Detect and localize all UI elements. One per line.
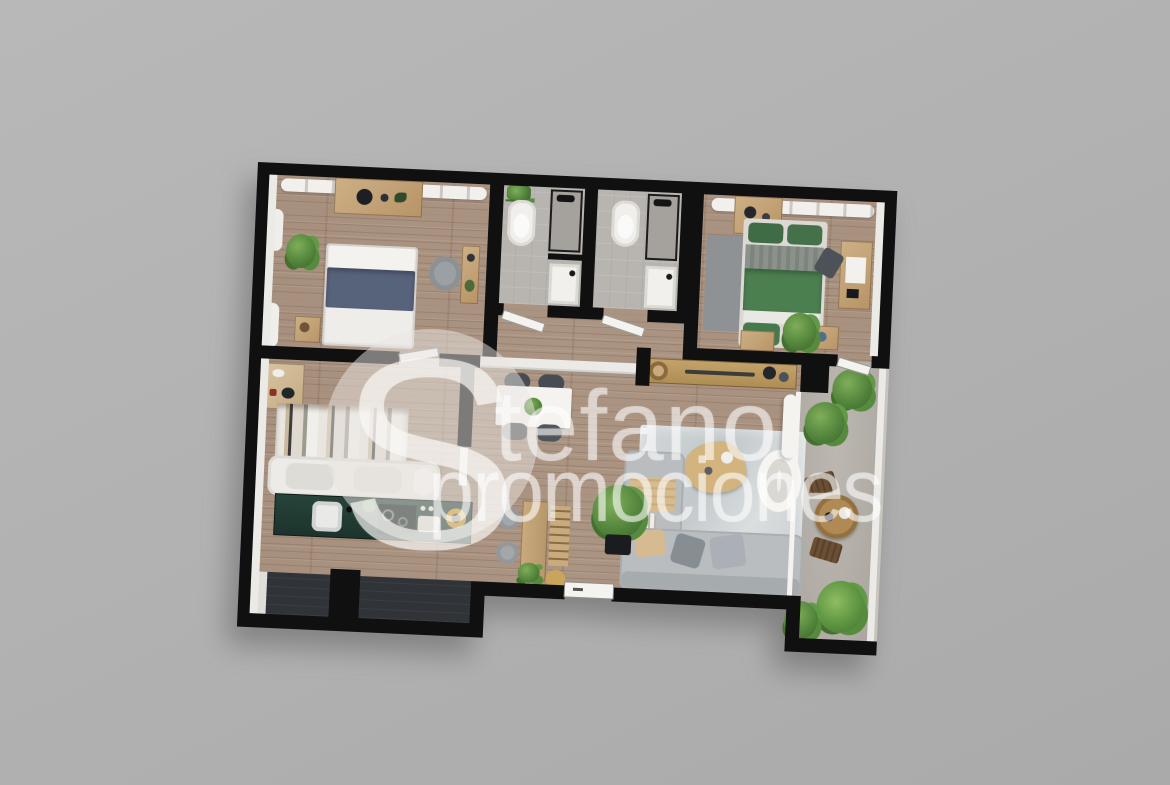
toilet-bowl — [617, 214, 634, 239]
desk — [838, 241, 873, 310]
tap — [569, 270, 575, 276]
blue-bowl — [779, 372, 789, 382]
hat-box-decor — [356, 189, 373, 206]
nightstand — [740, 330, 775, 352]
decor-dot — [744, 206, 757, 219]
pillow-green — [748, 222, 784, 244]
toilet — [611, 200, 641, 247]
decor-leaf — [394, 192, 406, 203]
shower — [645, 194, 680, 261]
decor-bird — [272, 369, 284, 378]
wardrobe — [334, 178, 424, 218]
laptop — [846, 289, 858, 299]
seat-cushion — [285, 463, 334, 491]
shower — [548, 189, 583, 252]
floor-plan-render: S tefano promociones — [0, 0, 1170, 785]
toilet — [506, 199, 536, 246]
wall-console — [460, 245, 481, 304]
bedroomright-bottom-wall — [871, 356, 878, 368]
bath-plant-shelf — [507, 185, 532, 200]
baths-bottom-wall — [547, 305, 603, 320]
tap — [666, 274, 672, 280]
baths-bottom-wall — [647, 310, 677, 323]
decor-dot — [467, 254, 475, 262]
decor-dot — [816, 332, 826, 342]
nightstand — [294, 316, 321, 343]
paper — [845, 257, 866, 284]
blanket-gray — [745, 244, 824, 272]
terrace-corner-wall — [800, 359, 829, 393]
washbasin — [644, 266, 677, 309]
duvet-green — [743, 268, 823, 313]
pillow-green — [787, 224, 823, 246]
decor-plant — [464, 280, 475, 292]
washbasin — [548, 263, 580, 304]
shower-fixture — [653, 199, 671, 207]
terrace-wall-bottom — [784, 637, 877, 655]
shower-fixture — [557, 195, 575, 203]
decor-turtle — [281, 387, 294, 399]
toilet-bowl — [513, 214, 530, 239]
front-door — [564, 581, 615, 599]
door-handle — [573, 588, 583, 591]
watermark-line2: promociones — [428, 446, 882, 536]
decor-red — [269, 389, 276, 396]
decor-dot — [380, 194, 388, 202]
decor-dot — [299, 322, 309, 332]
